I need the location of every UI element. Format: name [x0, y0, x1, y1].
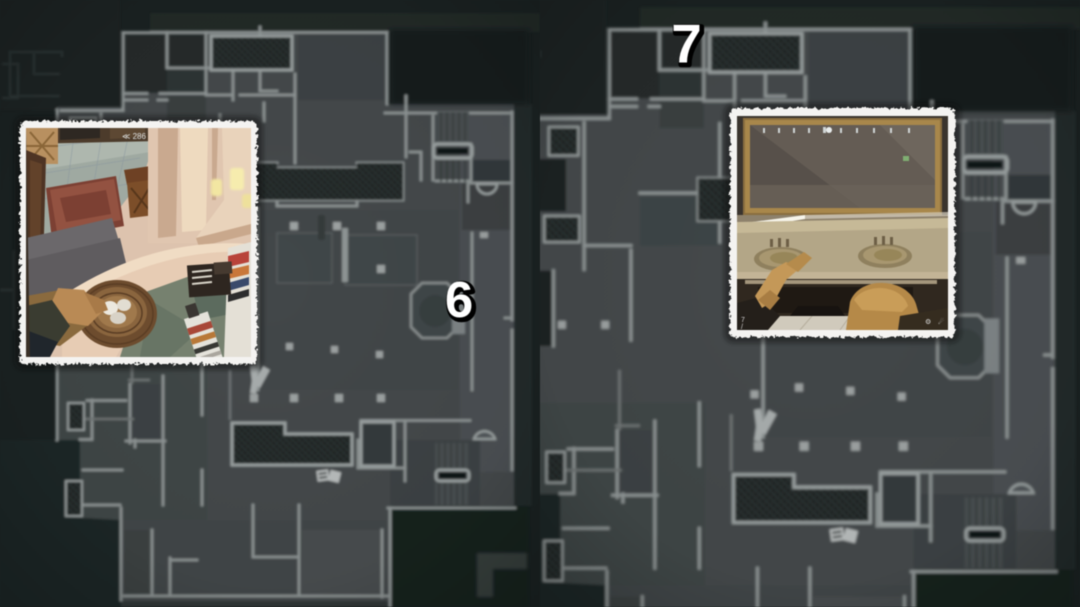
svg-text:7: 7 [671, 13, 702, 75]
svg-text:≪ 286: ≪ 286 [122, 132, 146, 141]
svg-text:⚙: ⚙ [925, 318, 931, 326]
svg-text:☄: ☄ [938, 317, 944, 326]
svg-text:6: 6 [445, 271, 473, 328]
svg-text:7: 7 [741, 317, 745, 324]
svg-text:/: / [741, 324, 743, 331]
